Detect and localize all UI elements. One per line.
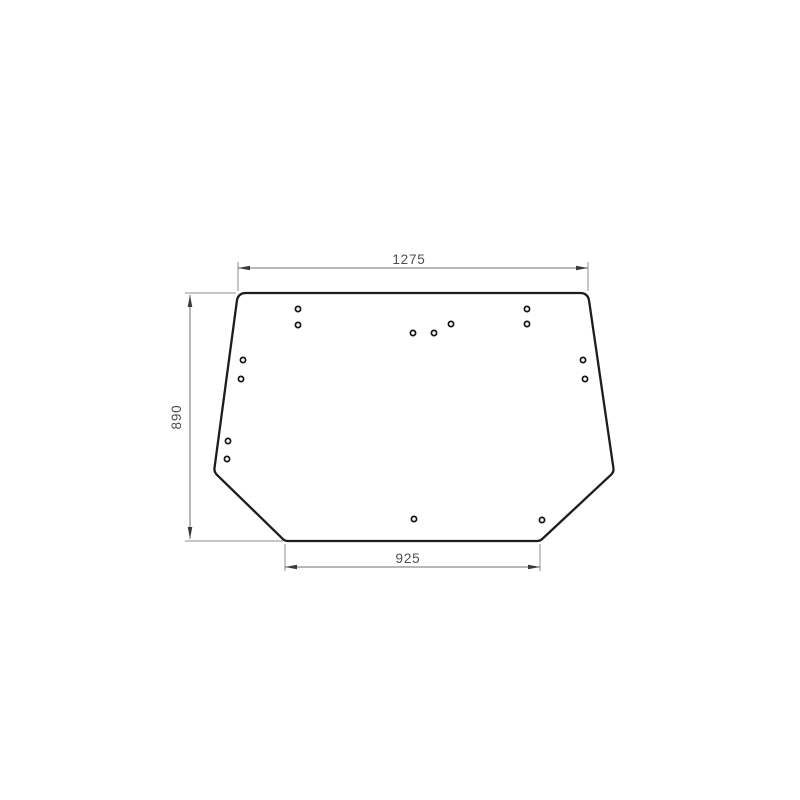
mounting-hole-5 (448, 321, 453, 326)
mounting-hole-6 (524, 306, 529, 311)
mounting-hole-15 (539, 517, 544, 522)
mounting-hole-13 (224, 456, 229, 461)
mounting-hole-14 (411, 516, 416, 521)
mounting-hole-4 (431, 330, 436, 335)
dimension-arrow (285, 565, 297, 570)
dimension-arrow (188, 527, 193, 539)
mounting-hole-2 (295, 322, 300, 327)
mounting-hole-3 (410, 330, 415, 335)
mounting-hole-9 (238, 376, 243, 381)
dimension-arrow (528, 565, 540, 570)
dimension-label-bottom-width: 925 (396, 551, 421, 566)
drawing-page: 1275890925 (0, 0, 800, 800)
technical-drawing: 1275890925 (0, 0, 800, 800)
mounting-hole-7 (524, 321, 529, 326)
dimension-top-width: 1275 (238, 252, 588, 291)
dimension-label-left-height: 890 (169, 405, 184, 430)
mounting-hole-12 (225, 438, 230, 443)
dimension-arrow (238, 266, 250, 271)
dimension-bottom-width: 925 (285, 544, 540, 571)
dimension-arrow (576, 266, 588, 271)
mounting-hole-11 (582, 376, 587, 381)
mounting-hole-8 (240, 357, 245, 362)
mounting-hole-10 (580, 357, 585, 362)
dimension-arrow (188, 295, 193, 307)
mounting-hole-1 (295, 306, 300, 311)
dimension-label-top-width: 1275 (392, 252, 425, 267)
